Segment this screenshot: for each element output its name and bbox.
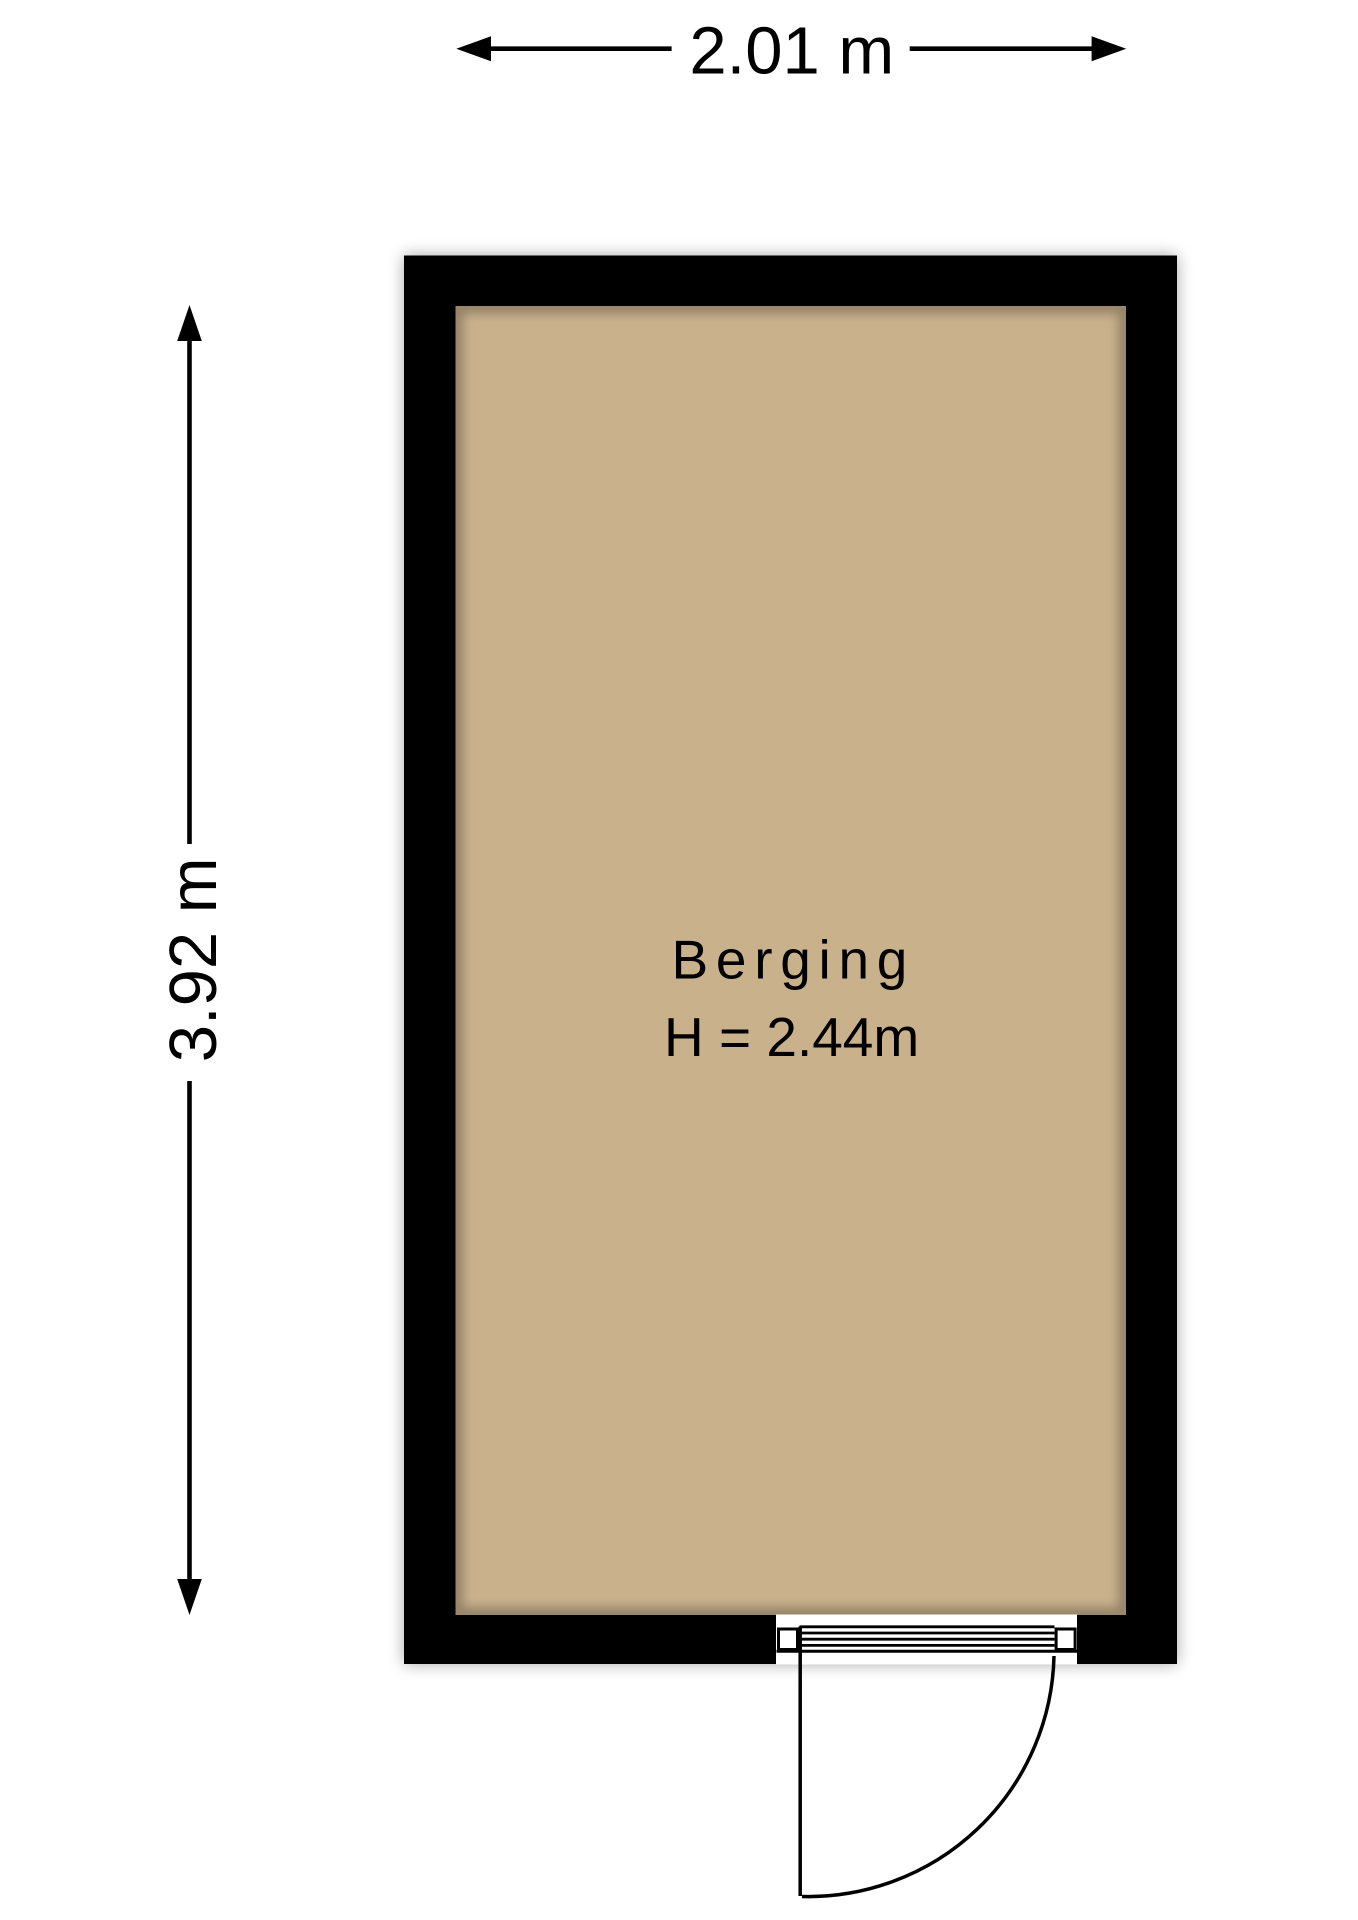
svg-text:H = 2.44m: H = 2.44m bbox=[664, 1006, 919, 1068]
svg-text:2.01 m: 2.01 m bbox=[689, 14, 894, 89]
svg-text:Berging: Berging bbox=[672, 928, 915, 990]
svg-text:3.92 m: 3.92 m bbox=[156, 857, 231, 1062]
